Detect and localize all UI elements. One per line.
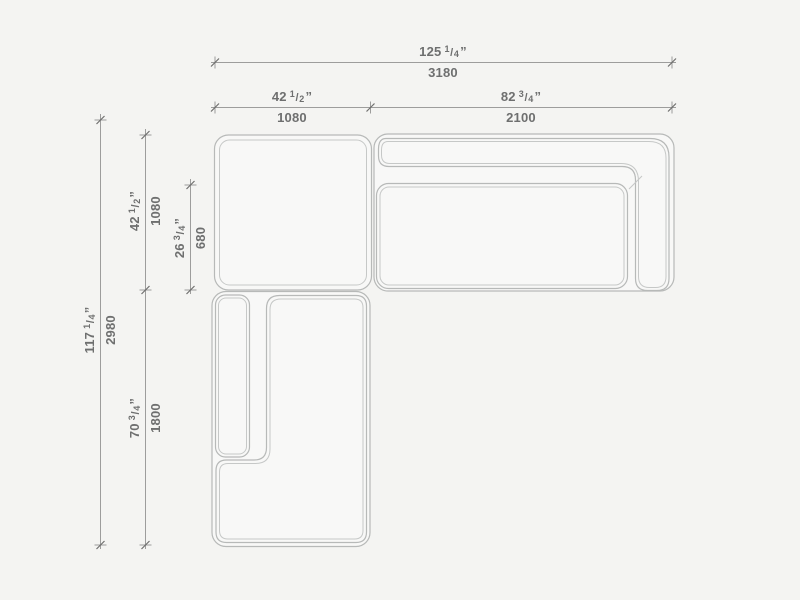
right-sofa-seat-outline bbox=[377, 184, 628, 289]
bottom-module-backrest-outline bbox=[216, 295, 250, 457]
dimension-ticks bbox=[95, 57, 673, 546]
dimension-tick-slashes bbox=[97, 59, 677, 550]
drawing-canvas bbox=[0, 0, 800, 600]
chaise-cushion-outline bbox=[220, 140, 367, 285]
sofa-plan bbox=[212, 134, 674, 547]
dimension-drawing: 1251/4” 3180 421/2” 1080 823/4” 2100 117… bbox=[0, 0, 800, 600]
